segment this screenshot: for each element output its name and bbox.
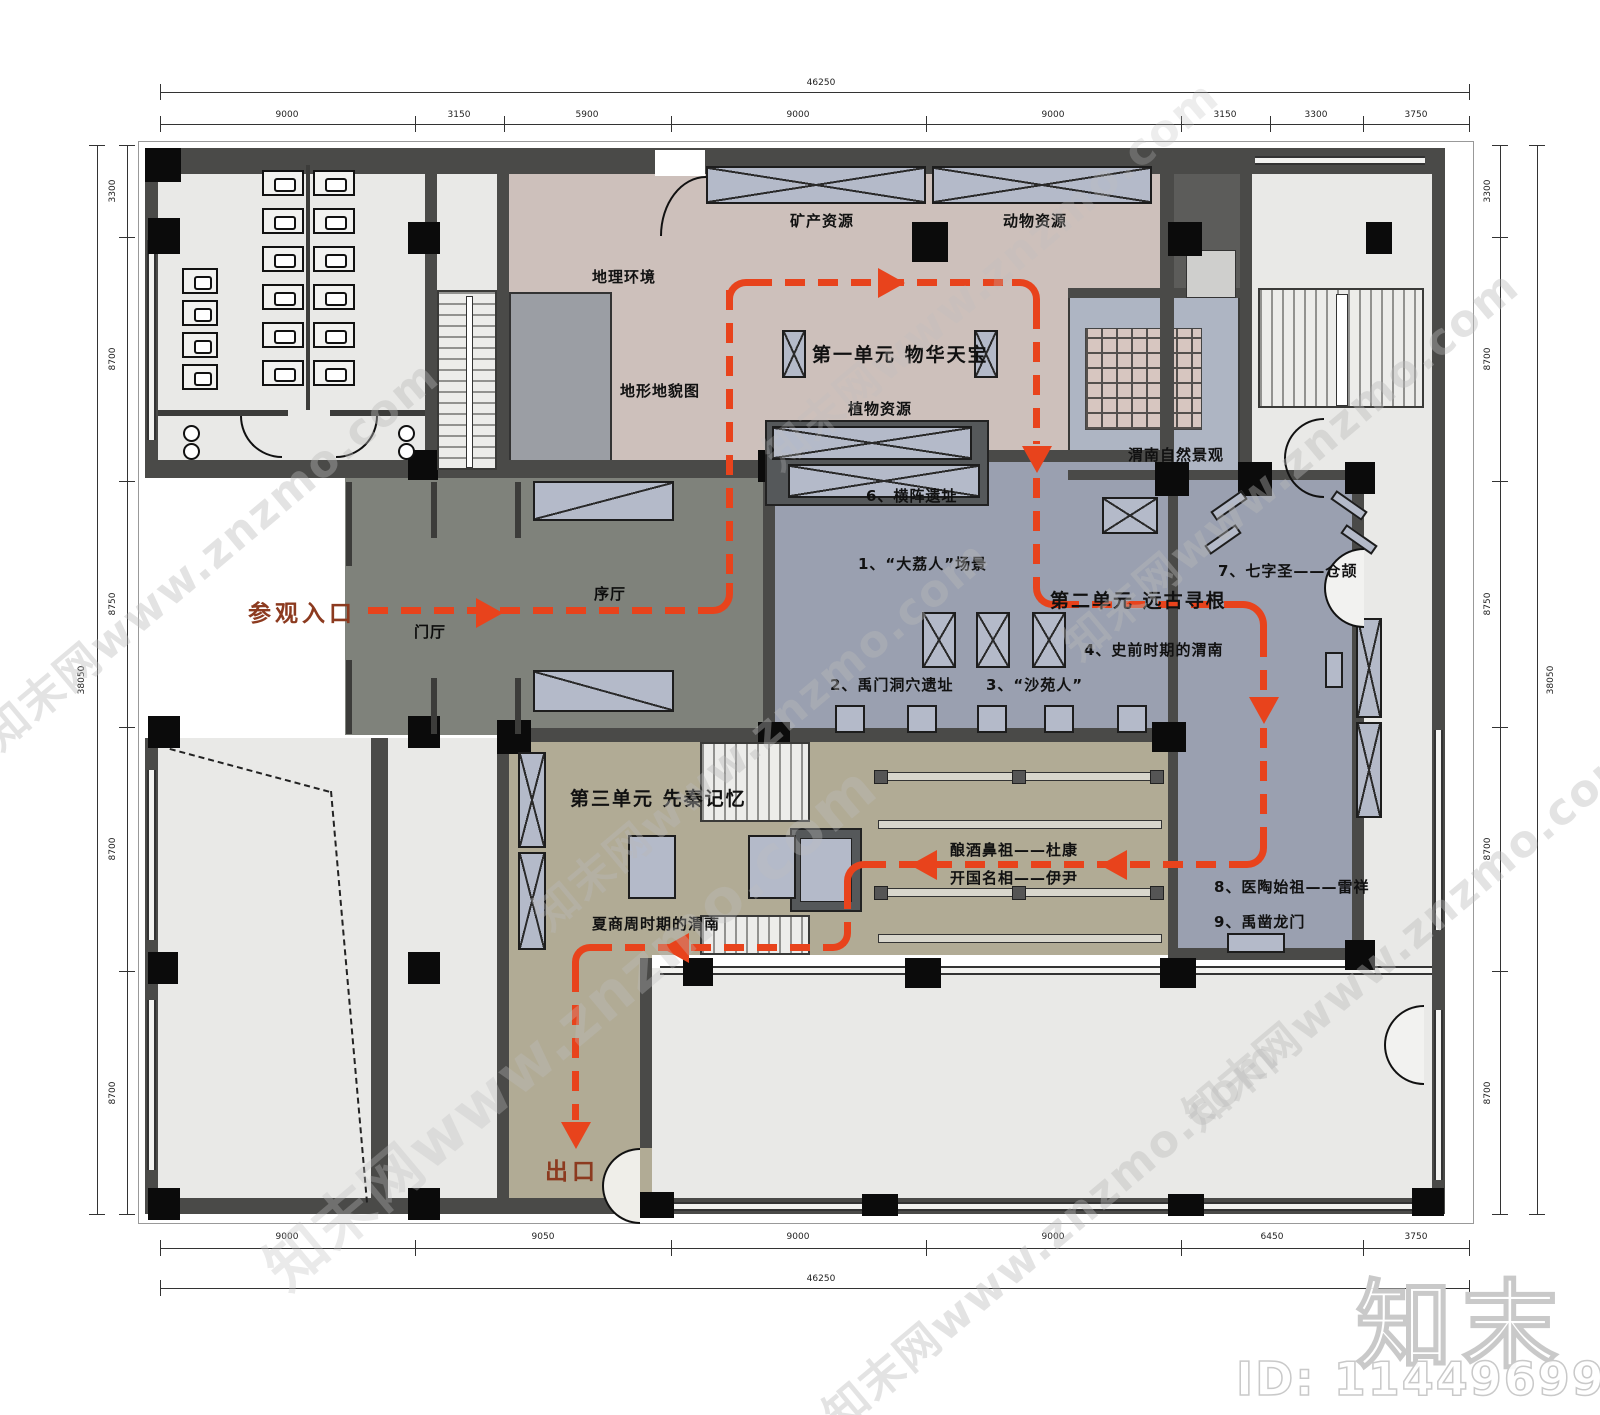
display-case (1044, 705, 1074, 733)
dim-tick (89, 1214, 105, 1215)
label-xuting: 序厅 (594, 583, 626, 604)
dim-bottom-seg: 6450 (1261, 1232, 1284, 1242)
display-case (1227, 933, 1285, 953)
wall-blroom-right (371, 738, 388, 1214)
route-arrow-left (1100, 850, 1127, 880)
column (905, 958, 941, 988)
hall-partition (346, 660, 352, 734)
wall-unit1-right (1160, 148, 1174, 478)
column (640, 1192, 674, 1218)
dim-right-seg: 8700 (1483, 838, 1493, 861)
duct-pocket (1186, 250, 1236, 298)
toilet-stall (262, 170, 304, 196)
sink-fixture (183, 425, 200, 442)
dim-tick (119, 481, 135, 482)
wall-exitcorr-right (640, 958, 652, 1148)
column (148, 218, 180, 254)
dim-line-bottom-seg (160, 1248, 1470, 1249)
image-id: ID: 1144969903 (1236, 1352, 1600, 1406)
dim-right-seg: 8750 (1483, 593, 1493, 616)
label-unit2-title: 第二单元 远古寻根 (1050, 586, 1227, 613)
terrain-model-box (509, 292, 612, 462)
top-wall-door-gap (655, 150, 705, 176)
dim-tick (1492, 1214, 1508, 1215)
dim-tick (160, 1280, 161, 1296)
label-prehistoric: 4、史前时期的渭南 (1084, 639, 1223, 660)
column (497, 720, 531, 754)
route-line (572, 972, 579, 1120)
dim-bottom-seg: 9000 (1042, 1232, 1065, 1242)
window-left-1 (147, 240, 156, 440)
column (1345, 940, 1375, 970)
route-line (726, 290, 733, 583)
window-left-3 (147, 1000, 156, 1170)
label-natural-view: 渭南自然景观 (1128, 444, 1224, 465)
toilet-stall (262, 208, 304, 234)
pedestal (748, 835, 796, 899)
column (1168, 222, 1202, 256)
dim-tick (415, 116, 416, 132)
route-arrow-down (1022, 446, 1052, 473)
dim-tick (1181, 116, 1182, 132)
exhibit-table (878, 934, 1162, 943)
route-arrow-left (910, 850, 937, 880)
label-exit: 出口 (545, 1152, 599, 1186)
dim-tick (119, 145, 135, 146)
toilet-stall (262, 284, 304, 310)
dim-tick (160, 1240, 161, 1256)
dim-tick (1529, 145, 1545, 146)
display-case (976, 612, 1010, 668)
display-case-tall (518, 852, 546, 950)
display-case (706, 166, 926, 204)
column (862, 1194, 898, 1216)
column (148, 1188, 180, 1220)
toilet-stall (262, 246, 304, 272)
dim-line-top-seg (160, 124, 1470, 125)
prologue-table (533, 670, 674, 712)
toilet-stall (182, 332, 218, 358)
dim-line-bottom-total (160, 1288, 1470, 1289)
dim-top-seg: 9000 (276, 110, 299, 120)
display-case (977, 705, 1007, 733)
bottom-left-room (150, 738, 388, 1214)
column (145, 148, 181, 182)
label-geo-env: 地理环境 (592, 266, 656, 287)
label-hengzhen: 6、横阵遗址 (866, 485, 957, 506)
dim-tick (119, 237, 135, 238)
route-line (1260, 728, 1267, 840)
restroom-partition (306, 165, 310, 410)
label-unit1-title: 第一单元 物华天宝 (812, 340, 989, 367)
table-node (874, 770, 888, 784)
dim-right-seg: 8700 (1483, 1082, 1493, 1105)
column (408, 952, 440, 984)
label-niangjiu: 酿酒鼻祖——杜康 (950, 839, 1078, 860)
route-line (844, 889, 851, 927)
column (1152, 722, 1186, 752)
label-yuzao: 9、禹凿龙门 (1214, 911, 1305, 932)
table-node (1012, 886, 1026, 900)
label-menting: 门厅 (414, 621, 446, 642)
label-yitao: 8、医陶始祖——雷祥 (1214, 876, 1369, 897)
hall-partition (515, 482, 521, 538)
display-case-tall (1356, 722, 1382, 818)
route-arrow-right (476, 598, 503, 628)
dim-tick (671, 1240, 672, 1256)
floor-plan-canvas: 矿产资源 动物资源 地理环境 第一单元 物华天宝 地形地貌图 植物资源 渭南自然… (0, 0, 1600, 1415)
column (148, 716, 180, 748)
toilet-stall (182, 300, 218, 326)
window-bottomroom-bottom (660, 1202, 1430, 1211)
hall-partition (431, 678, 437, 734)
route-arrow-down (1249, 697, 1279, 724)
sink-fixture (398, 443, 415, 460)
toilet-stall (313, 360, 355, 386)
dim-right-seg: 3300 (1483, 180, 1493, 203)
dim-tick (1469, 116, 1470, 132)
dim-line-left-seg (127, 145, 128, 1215)
column (1160, 958, 1196, 988)
column (1345, 462, 1375, 494)
display-case (1102, 497, 1158, 534)
dim-tick (1492, 481, 1508, 482)
dim-tick (926, 1240, 927, 1256)
stair-left (437, 290, 497, 470)
label-mineral: 矿产资源 (790, 210, 854, 231)
dim-tick (119, 971, 135, 972)
wall-nv-bottom (1068, 470, 1240, 480)
dim-top-seg: 3750 (1405, 110, 1428, 120)
exhibit-table (878, 820, 1162, 829)
column (912, 222, 948, 262)
display-case (1325, 652, 1343, 688)
label-entrance: 参观入口 (248, 594, 356, 628)
wall-exitcorr-left (497, 728, 509, 1214)
column (148, 952, 178, 984)
display-case (922, 612, 956, 668)
dim-tick (415, 1240, 416, 1256)
window-bottomroom-top (660, 966, 1432, 975)
dim-line-left-total (97, 145, 98, 1215)
route-line (592, 944, 827, 951)
column (1366, 222, 1392, 254)
dim-right-total: 38050 (1546, 666, 1556, 695)
route-line (1260, 637, 1267, 695)
route-arrow-left (662, 933, 689, 963)
dim-tick (1363, 116, 1364, 132)
dim-line-right-seg (1500, 145, 1501, 1215)
bottom-left-strip (388, 738, 505, 1214)
dim-tick (1492, 727, 1508, 728)
hall-partition (515, 678, 521, 734)
wall-restroom-stair (425, 148, 437, 478)
dim-tick (119, 727, 135, 728)
dim-tick (1181, 1240, 1182, 1256)
dim-top-total: 46250 (807, 78, 836, 88)
hall-partition (346, 482, 352, 566)
wall-stair-unit1 (497, 148, 509, 478)
dim-tick (1492, 145, 1508, 146)
column (408, 1188, 440, 1220)
display-case (907, 705, 937, 733)
display-case (835, 705, 865, 733)
dim-left-seg: 8700 (108, 1082, 118, 1105)
dim-tick (119, 1214, 135, 1215)
display-case-tall (1356, 618, 1382, 718)
toilet-stall (313, 208, 355, 234)
dim-right-seg: 8700 (1483, 348, 1493, 371)
toilet-stall (262, 322, 304, 348)
table-node (1012, 770, 1026, 784)
display-case-tall (518, 752, 546, 848)
dim-left-seg: 8700 (108, 348, 118, 371)
label-shayuan: 3、“沙苑人” (986, 674, 1083, 695)
route-arrow-down (561, 1122, 591, 1149)
dim-left-seg: 8700 (108, 838, 118, 861)
dim-tick (160, 84, 161, 100)
dim-top-seg: 3150 (1214, 110, 1237, 120)
grid-platform (1085, 328, 1202, 430)
toilet-stall (313, 284, 355, 310)
stair-right (1258, 288, 1424, 408)
label-dali: 1、“大荔人”场景 (858, 553, 987, 574)
dim-top-seg: 9000 (787, 110, 810, 120)
dim-tick (89, 145, 105, 146)
route-arrow-right (878, 268, 905, 298)
prologue-table (533, 481, 674, 521)
dim-top-seg: 3150 (448, 110, 471, 120)
label-qizisheng: 7、七字圣——仓颉 (1218, 560, 1357, 581)
column (408, 222, 440, 254)
column (1412, 1188, 1444, 1216)
dim-tick (926, 116, 927, 132)
table-node (874, 886, 888, 900)
wall-unit2col-left (1168, 478, 1178, 960)
toilet-stall (182, 364, 218, 390)
stair-rail (1336, 294, 1348, 406)
label-terrain-map: 地形地貌图 (620, 380, 700, 401)
dim-line-right-total (1537, 145, 1538, 1215)
dim-tick (160, 116, 161, 132)
bottom-center-room (652, 968, 1432, 1214)
dim-tick (671, 116, 672, 132)
stair-rail (466, 296, 473, 468)
window-left-2 (147, 770, 156, 940)
pedestal (628, 835, 676, 899)
window-right-1 (1434, 730, 1443, 930)
dim-bottom-seg: 9050 (532, 1232, 555, 1242)
toilet-stall (313, 170, 355, 196)
label-kaiguo: 开国名相——伊尹 (950, 867, 1078, 888)
dim-left-seg: 8750 (108, 593, 118, 616)
table-node (1150, 770, 1164, 784)
dim-tick (1469, 84, 1470, 100)
dim-tick (1270, 116, 1271, 132)
label-plant: 植物资源 (848, 398, 912, 419)
sink-fixture (398, 425, 415, 442)
label-xiashangzhou: 夏商周时期的渭南 (592, 913, 720, 934)
dim-left-total: 38050 (77, 666, 87, 695)
label-unit3-title: 第三单元 先秦记忆 (570, 784, 747, 811)
toilet-stall (313, 246, 355, 272)
table-node (1150, 886, 1164, 900)
label-animal: 动物资源 (1003, 210, 1067, 231)
dim-bottom-seg: 3750 (1405, 1232, 1428, 1242)
route-line (1033, 309, 1040, 444)
dim-tick (1492, 237, 1508, 238)
dim-top-seg: 5900 (576, 110, 599, 120)
dim-bottom-total: 46250 (807, 1274, 836, 1284)
display-case (772, 426, 972, 460)
toilet-stall (182, 268, 218, 294)
dim-tick (504, 116, 505, 132)
display-case (1117, 705, 1147, 733)
dim-tick (1492, 971, 1508, 972)
route-line (1033, 478, 1040, 578)
window-right-2 (1434, 1010, 1443, 1180)
hall-partition (431, 482, 437, 538)
window-topright (1255, 156, 1425, 165)
wall-stairwell-left (1240, 148, 1252, 478)
dim-tick (1529, 1214, 1545, 1215)
column (1168, 1194, 1204, 1216)
display-case (1032, 612, 1066, 668)
column (1155, 462, 1189, 496)
dim-left-seg: 3300 (108, 180, 118, 203)
display-case (932, 166, 1152, 204)
toilet-stall (262, 360, 304, 386)
route-entrance-line (368, 607, 711, 614)
display-case (782, 330, 806, 378)
label-yumen: 2、禹门洞穴遗址 (830, 674, 953, 695)
sink-fixture (183, 443, 200, 460)
dim-top-seg: 3300 (1305, 110, 1328, 120)
dim-bottom-seg: 9000 (276, 1232, 299, 1242)
dim-top-seg: 9000 (1042, 110, 1065, 120)
column (1238, 462, 1272, 496)
toilet-stall (313, 322, 355, 348)
dim-bottom-seg: 9000 (787, 1232, 810, 1242)
dim-line-top-total (160, 92, 1470, 93)
